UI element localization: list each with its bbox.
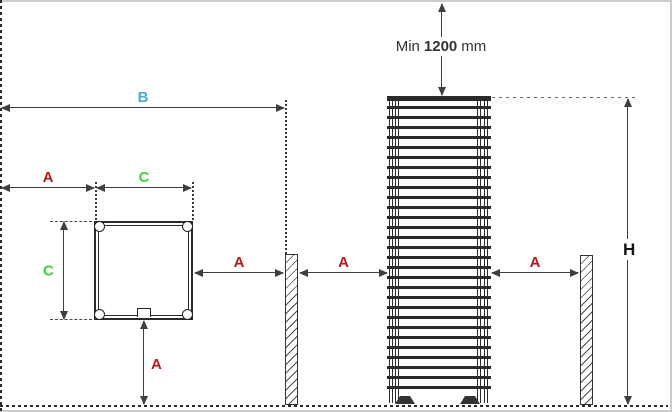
dim-c-side-label: C — [43, 263, 54, 278]
arrowhead-right-icon — [276, 104, 285, 112]
heater-top-view — [94, 221, 193, 320]
dim-a-left-line — [2, 187, 94, 188]
corner-post-icon — [94, 221, 105, 232]
dim-a-heater-to-wall-label: A — [530, 255, 541, 270]
wall-section-right — [580, 255, 593, 405]
dim-line — [492, 272, 578, 273]
corner-post-icon — [94, 309, 105, 320]
dim-b-line — [2, 107, 284, 108]
heater-slats — [387, 96, 491, 396]
corner-post-icon — [182, 309, 193, 320]
dim-a-bottom-line — [143, 321, 144, 404]
heater-top-reference-line — [492, 97, 637, 98]
wall-section-left — [285, 254, 298, 405]
floor-dashed-line — [0, 405, 668, 407]
c-extension-top — [50, 221, 92, 222]
arrowhead-left-icon — [491, 269, 500, 277]
arrowhead-left-icon — [1, 104, 10, 112]
arrowhead-right-icon — [86, 184, 95, 192]
dim-c-top-label: C — [139, 170, 150, 185]
arrowhead-up-icon — [624, 98, 632, 107]
min-clearance-text: Min1200mm — [391, 37, 491, 56]
arrowhead-left-icon — [194, 269, 203, 277]
dim-a-bottom-label: A — [151, 357, 162, 372]
dim-b-label: B — [138, 90, 149, 105]
extension-line-mid — [192, 182, 194, 220]
c-extension-bottom — [50, 319, 92, 320]
arrowhead-up-icon — [140, 320, 148, 329]
dim-line — [300, 272, 387, 273]
square-inner-frame — [98, 225, 189, 316]
arrowhead-left-icon — [1, 184, 10, 192]
arrowhead-down-icon — [624, 396, 632, 405]
arrowhead-up-icon — [438, 3, 446, 12]
corner-post-icon — [182, 221, 193, 232]
dim-a-square-to-wall-label: A — [234, 255, 245, 270]
heater-top-bar — [387, 96, 491, 101]
heater-side-view — [388, 96, 490, 404]
arrowhead-up-icon — [60, 221, 68, 230]
heater-foot-icon — [395, 396, 415, 404]
arrowhead-right-icon — [183, 184, 192, 192]
arrowhead-right-icon — [570, 269, 579, 277]
dim-line — [195, 272, 283, 273]
arrowhead-left-icon — [299, 269, 308, 277]
arrowhead-right-icon — [275, 269, 284, 277]
dim-c-top-line — [97, 187, 191, 188]
arrowhead-down-icon — [60, 311, 68, 320]
square-notch — [137, 308, 151, 317]
dim-a-left-label: A — [43, 170, 54, 185]
dim-h-label: H — [620, 239, 638, 260]
arrowhead-left-icon — [96, 184, 105, 192]
heater-foot-icon — [460, 396, 480, 404]
min-clearance-value: 1200 — [424, 38, 457, 55]
extension-line-wall — [285, 100, 287, 254]
left-wall-dashed-line — [0, 0, 2, 412]
dim-a-wall-to-heater-label: A — [338, 255, 349, 270]
installation-diagram: B A C C A — [0, 0, 672, 412]
min-clearance-prefix: Min — [396, 38, 420, 55]
min-clearance-unit: mm — [461, 38, 486, 55]
ceiling-line — [0, 0, 672, 2]
dim-c-side-line — [63, 222, 64, 319]
arrowhead-down-icon — [438, 87, 446, 96]
arrowhead-down-icon — [140, 396, 148, 405]
